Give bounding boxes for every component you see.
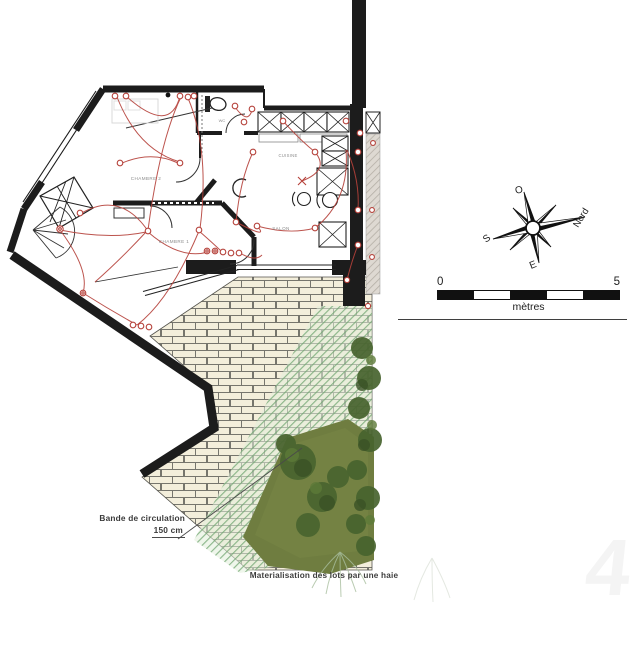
wardrobe-icon [40, 177, 93, 228]
page: CHAMBRE 2 CHAMBRE 1 SALON CUISINE WC O N… [0, 0, 640, 649]
watermark: 4 [582, 528, 635, 608]
faint-frond [414, 558, 450, 602]
lamp-cross-icon [298, 177, 306, 185]
room-label-chambre1: CHAMBRE 1 [159, 239, 189, 244]
scale-end: 5 [614, 276, 620, 288]
scale-bar-segments [437, 290, 620, 300]
scale-start: 0 [437, 276, 443, 288]
scale-bar: 0 5 mètres [437, 276, 620, 313]
circulation-annotation: Bande de circulation 150 cm [88, 512, 185, 538]
separator-line [398, 319, 627, 320]
toilet-icon [205, 96, 227, 112]
lots-annotation: Materialisation des lots par une haie [228, 571, 420, 580]
compass-south-label: S [481, 232, 493, 245]
room-label-wc: WC [219, 118, 226, 123]
room-label-salon: SALON [272, 226, 290, 231]
compass-rose: O Nord S E [481, 184, 591, 272]
right-neighbor-strip [366, 112, 380, 294]
circulation-label: Bande de circulation [88, 512, 185, 524]
circulation-value: 150 cm [152, 524, 185, 538]
room-label-cuisine: CUISINE [278, 153, 297, 158]
compass-east-label: E [528, 259, 539, 272]
compass-west-label: O [514, 184, 525, 197]
compass-center [526, 221, 540, 235]
compass-north-label: Nord [571, 206, 591, 229]
room-label-chambre2: CHAMBRE 2 [131, 176, 161, 181]
floor-plan-canvas: CHAMBRE 2 CHAMBRE 1 SALON CUISINE WC O N… [0, 0, 640, 649]
scale-unit: mètres [437, 301, 620, 313]
